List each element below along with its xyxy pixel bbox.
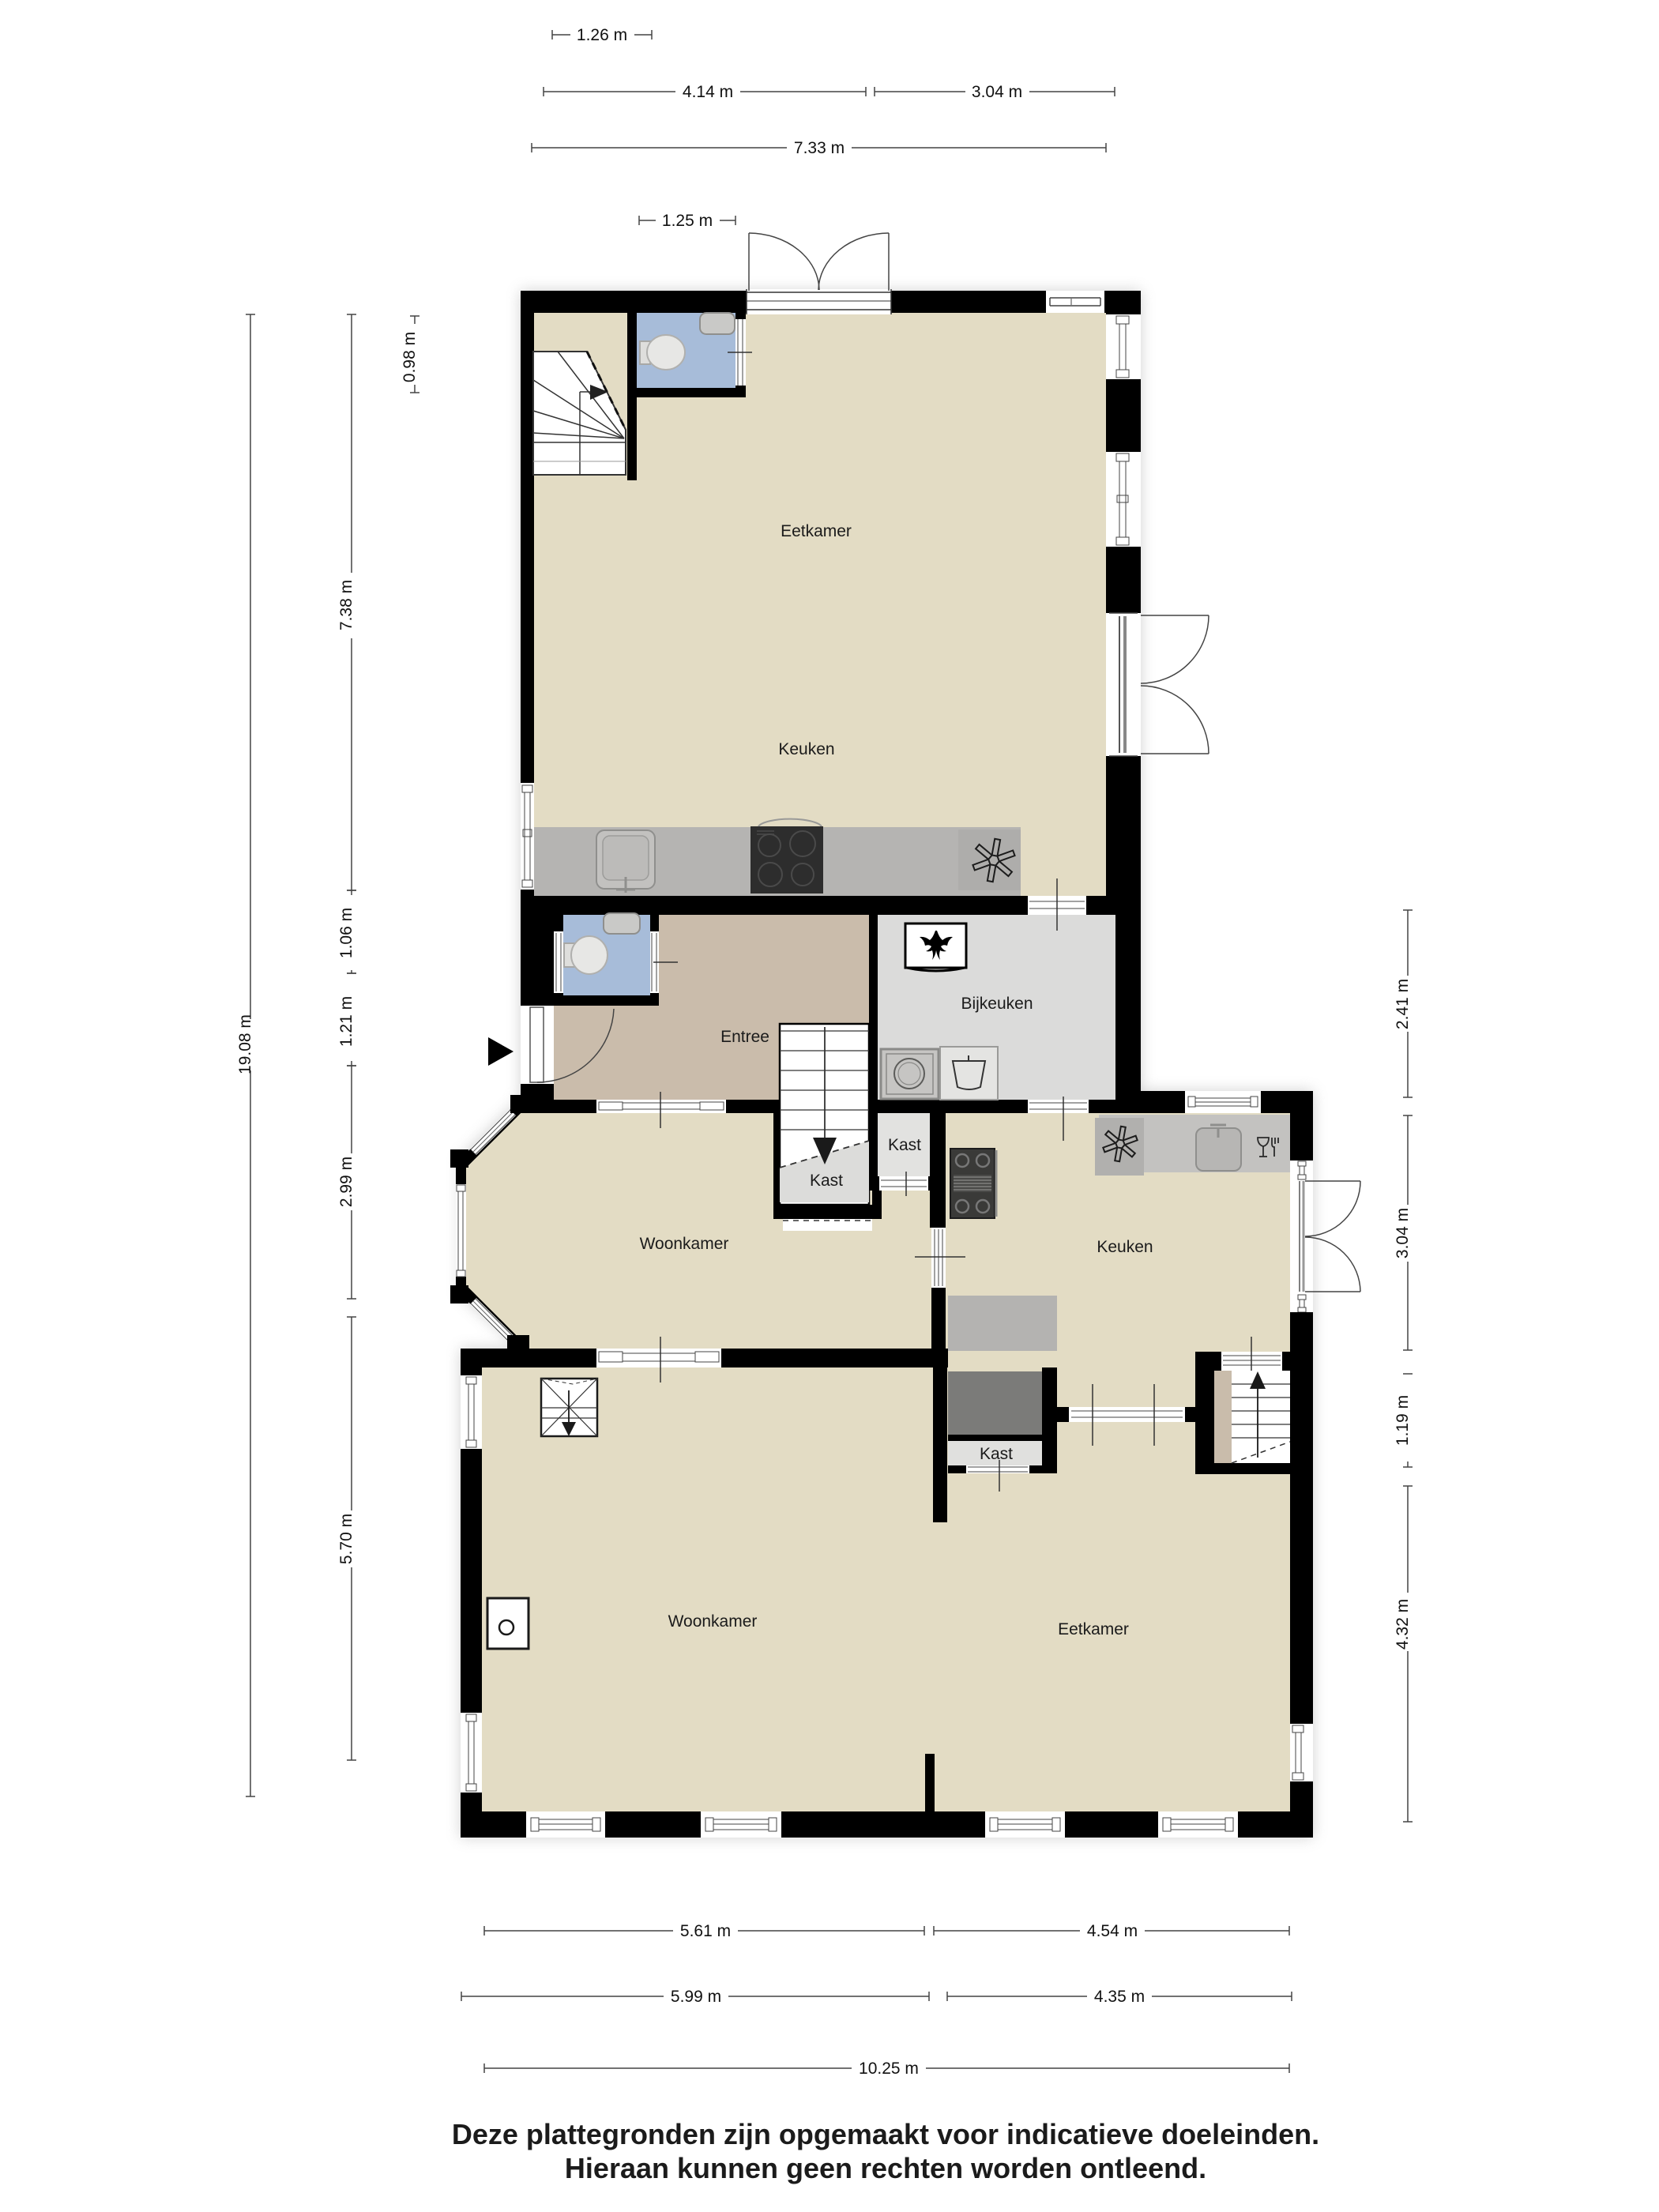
svg-text:Eetkamer: Eetkamer (781, 522, 852, 540)
svg-text:1.21 m: 1.21 m (337, 996, 355, 1047)
svg-text:Kast: Kast (810, 1172, 843, 1190)
svg-text:Kast: Kast (980, 1445, 1013, 1463)
svg-text:Bijkeuken: Bijkeuken (961, 995, 1033, 1013)
svg-text:Woonkamer: Woonkamer (668, 1612, 758, 1631)
svg-text:7.33 m: 7.33 m (794, 139, 845, 157)
svg-text:1.25 m: 1.25 m (662, 212, 713, 230)
svg-text:1.26 m: 1.26 m (577, 26, 627, 44)
svg-text:3.04 m: 3.04 m (972, 83, 1022, 101)
svg-text:Hieraan kunnen geen rechten wo: Hieraan kunnen geen rechten worden ontle… (565, 2152, 1206, 2184)
svg-text:0.98 m: 0.98 m (401, 332, 419, 382)
svg-text:1.19 m: 1.19 m (1394, 1395, 1412, 1446)
svg-text:4.14 m: 4.14 m (683, 83, 733, 101)
svg-text:2.99 m: 2.99 m (337, 1157, 355, 1207)
svg-text:Keuken: Keuken (778, 740, 834, 758)
svg-text:10.25 m: 10.25 m (859, 2060, 919, 2078)
svg-text:4.35 m: 4.35 m (1094, 1988, 1145, 2006)
svg-text:Deze plattegronden zijn opgema: Deze plattegronden zijn opgemaakt voor i… (452, 2118, 1319, 2150)
svg-text:19.08 m: 19.08 m (236, 1014, 254, 1074)
svg-text:5.61 m: 5.61 m (680, 1922, 731, 1940)
svg-text:5.70 m: 5.70 m (337, 1514, 355, 1564)
svg-text:3.04 m: 3.04 m (1394, 1208, 1412, 1258)
svg-text:7.38 m: 7.38 m (337, 580, 355, 630)
svg-text:Entree: Entree (720, 1028, 769, 1046)
svg-text:1.06 m: 1.06 m (337, 908, 355, 958)
svg-text:Eetkamer: Eetkamer (1058, 1620, 1129, 1638)
svg-text:2.41 m: 2.41 m (1394, 979, 1412, 1029)
svg-text:4.54 m: 4.54 m (1087, 1922, 1138, 1940)
svg-text:Kast: Kast (888, 1136, 921, 1154)
svg-text:Keuken: Keuken (1097, 1238, 1153, 1256)
svg-text:4.32 m: 4.32 m (1394, 1599, 1412, 1650)
svg-text:Woonkamer: Woonkamer (640, 1235, 729, 1253)
svg-text:5.99 m: 5.99 m (671, 1988, 721, 2006)
